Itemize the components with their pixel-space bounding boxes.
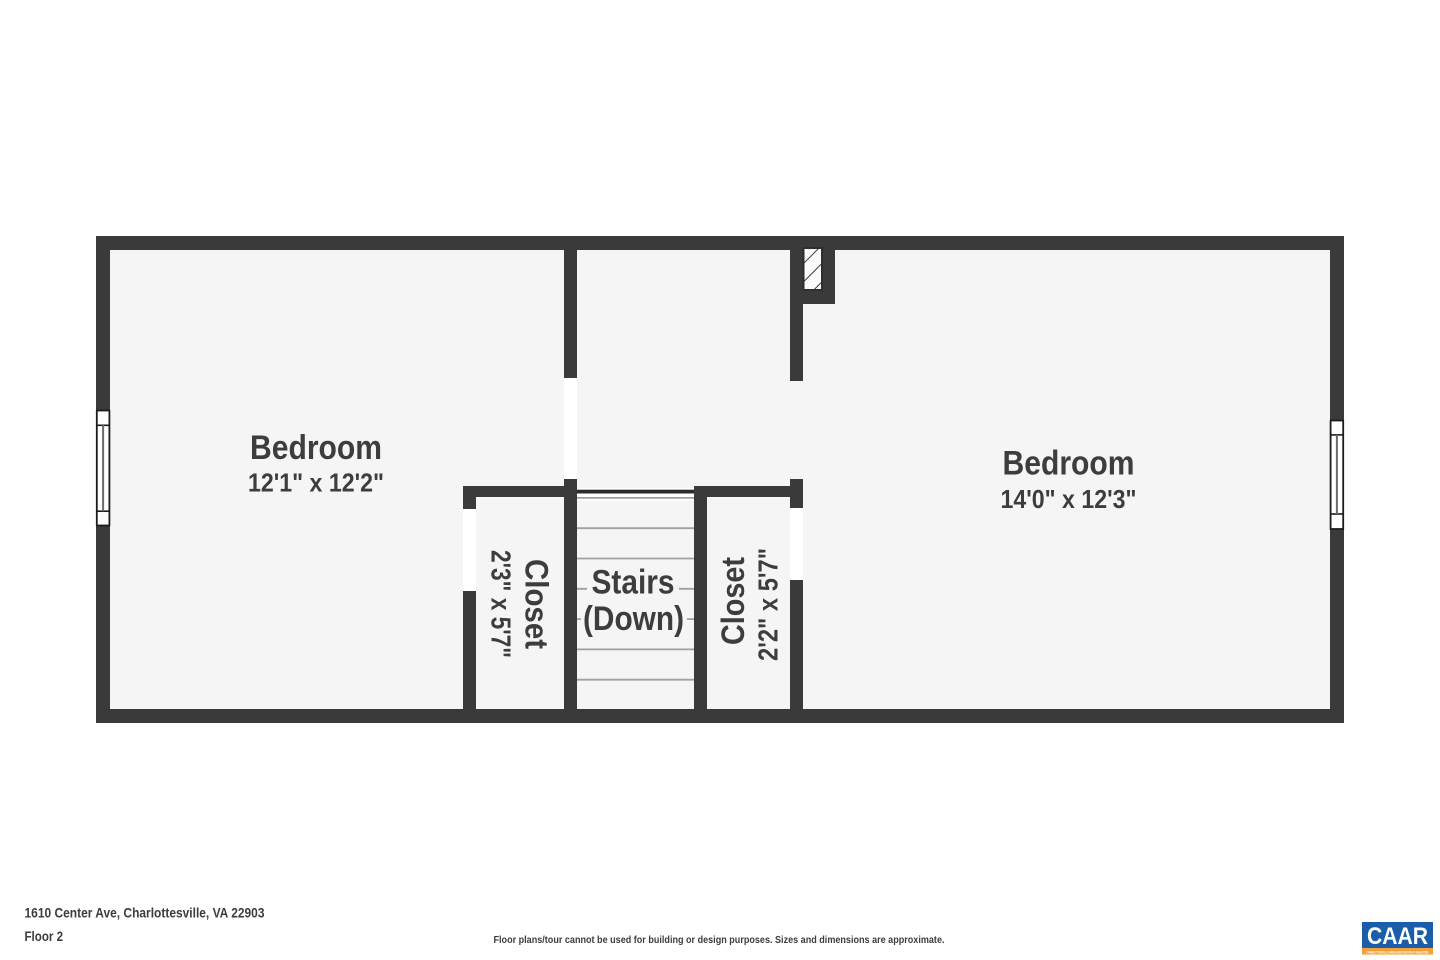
svg-text:Bedroom: Bedroom: [250, 429, 382, 467]
svg-text:CHARLOTTESVILLE AREA ASSOCIATI: CHARLOTTESVILLE AREA ASSOCIATION OF REAL…: [1367, 950, 1429, 954]
svg-text:2'3" x 5'7": 2'3" x 5'7": [486, 550, 517, 658]
svg-text:Closet: Closet: [519, 559, 555, 649]
svg-text:14'0" x 12'3": 14'0" x 12'3": [1001, 484, 1137, 514]
svg-text:1610 Center Ave, Charlottesvil: 1610 Center Ave, Charlottesville, VA 229…: [25, 905, 265, 921]
svg-text:Floor plans/tour cannot be use: Floor plans/tour cannot be used for buil…: [494, 934, 945, 946]
svg-text:Floor 2: Floor 2: [25, 928, 64, 944]
svg-text:Closet: Closet: [715, 557, 751, 645]
svg-text:Stairs: Stairs: [592, 564, 675, 602]
svg-text:Bedroom: Bedroom: [1003, 445, 1135, 483]
svg-text:(Down): (Down): [583, 600, 684, 638]
svg-text:2'2" x 5'7": 2'2" x 5'7": [753, 548, 784, 661]
svg-text:12'1" x 12'2": 12'1" x 12'2": [248, 468, 384, 498]
svg-text:CAAR: CAAR: [1367, 923, 1428, 950]
